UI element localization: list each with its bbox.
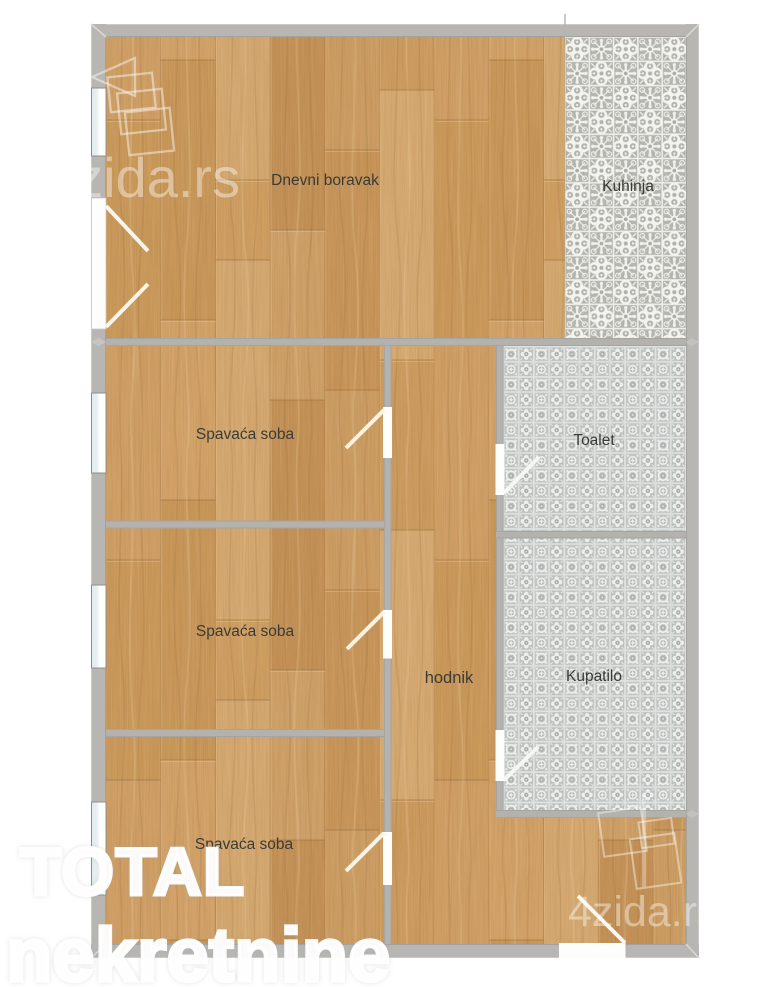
- svg-text:Kupatilo: Kupatilo: [566, 668, 622, 685]
- svg-text:nekretnine: nekretnine: [6, 913, 390, 987]
- svg-text:Toalet: Toalet: [573, 432, 615, 449]
- svg-text:4zida.rs: 4zida.rs: [568, 888, 719, 936]
- svg-text:Kuhinja: Kuhinja: [602, 178, 654, 195]
- svg-text:TOTAL: TOTAL: [20, 834, 245, 910]
- svg-text:Spavaća soba: Spavaća soba: [196, 426, 295, 443]
- svg-text:4zida.rs: 4zida.rs: [44, 146, 240, 209]
- svg-text:hodnik: hodnik: [425, 669, 474, 687]
- svg-text:Spavaća soba: Spavaća soba: [196, 623, 295, 640]
- svg-text:Dnevni boravak: Dnevni boravak: [271, 172, 379, 189]
